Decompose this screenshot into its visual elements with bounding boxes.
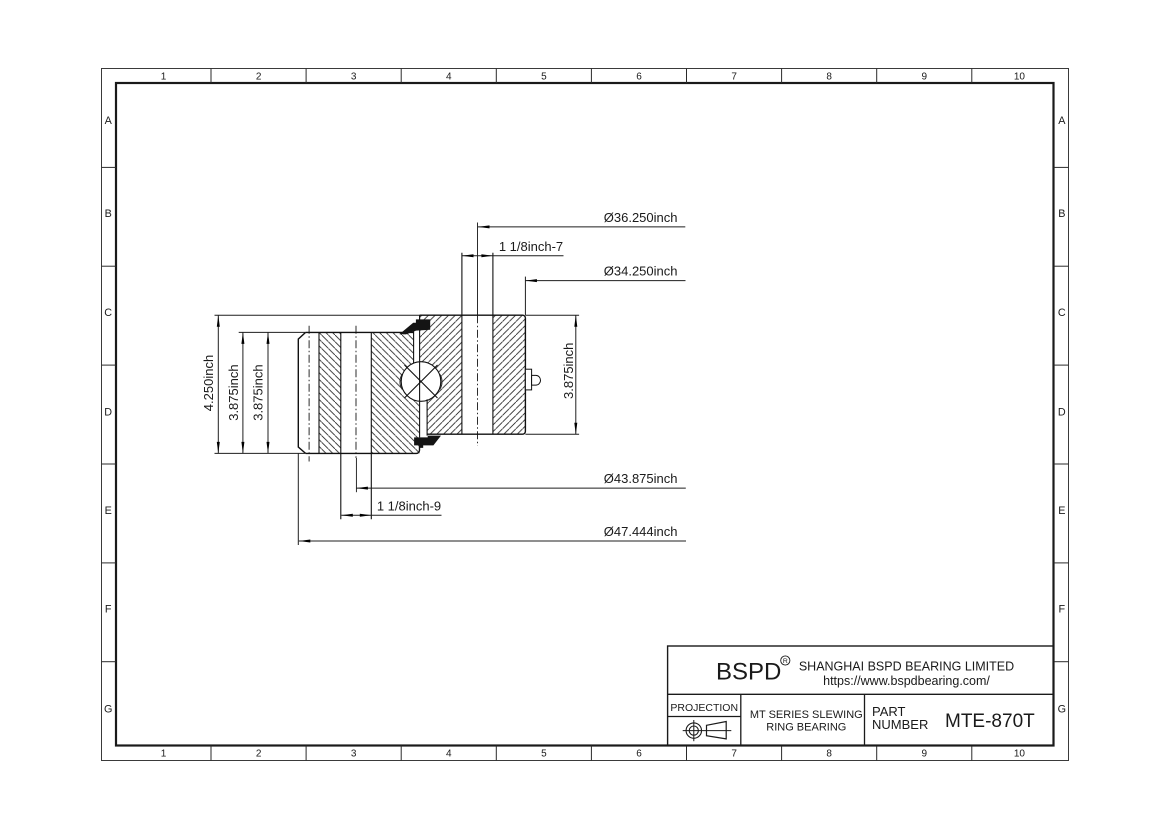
- svg-text:1: 1: [161, 749, 167, 760]
- svg-text:D: D: [1058, 406, 1066, 418]
- svg-text:3: 3: [351, 71, 357, 82]
- svg-text:C: C: [104, 307, 112, 319]
- svg-text:4: 4: [446, 749, 452, 760]
- svg-text:F: F: [1058, 604, 1065, 616]
- svg-text:A: A: [105, 115, 113, 127]
- svg-text:2: 2: [256, 749, 262, 760]
- svg-text:Ø34.250inch: Ø34.250inch: [604, 264, 678, 279]
- svg-text:6: 6: [636, 71, 642, 82]
- svg-text:BSPD: BSPD: [716, 659, 781, 686]
- svg-text:1 1/8inch-7: 1 1/8inch-7: [499, 239, 563, 254]
- svg-text:1: 1: [161, 71, 167, 82]
- svg-text:NUMBER: NUMBER: [872, 717, 928, 732]
- svg-text:7: 7: [731, 749, 737, 760]
- svg-text:Ø47.444inch: Ø47.444inch: [604, 524, 678, 539]
- svg-text:8: 8: [826, 749, 832, 760]
- svg-text:8: 8: [826, 71, 832, 82]
- svg-text:2: 2: [256, 71, 262, 82]
- svg-text:Ø43.875inch: Ø43.875inch: [604, 471, 678, 486]
- svg-text:R: R: [783, 658, 788, 665]
- svg-text:https://www.bspdbearing.com/: https://www.bspdbearing.com/: [823, 674, 990, 688]
- svg-text:9: 9: [922, 749, 928, 760]
- svg-text:MT SERIES SLEWING: MT SERIES SLEWING: [750, 709, 863, 721]
- svg-text:RING BEARING: RING BEARING: [766, 722, 846, 734]
- svg-text:10: 10: [1014, 71, 1026, 82]
- svg-text:SHANGHAI BSPD BEARING LIMITED: SHANGHAI BSPD BEARING LIMITED: [799, 659, 1014, 673]
- svg-text:1 1/8inch-9: 1 1/8inch-9: [377, 498, 441, 513]
- svg-text:4: 4: [446, 71, 452, 82]
- svg-text:A: A: [1058, 115, 1066, 127]
- svg-text:G: G: [104, 703, 112, 715]
- svg-text:3.875inch: 3.875inch: [251, 364, 266, 420]
- svg-text:3.875inch: 3.875inch: [226, 364, 241, 420]
- svg-text:G: G: [1058, 703, 1066, 715]
- svg-text:3.875inch: 3.875inch: [561, 343, 576, 399]
- svg-text:B: B: [1058, 208, 1065, 220]
- svg-text:MTE-870T: MTE-870T: [945, 711, 1035, 732]
- svg-text:10: 10: [1014, 749, 1026, 760]
- svg-text:PROJECTION: PROJECTION: [670, 702, 738, 714]
- svg-text:E: E: [105, 505, 112, 517]
- svg-text:5: 5: [541, 71, 547, 82]
- svg-text:Ø36.250inch: Ø36.250inch: [604, 210, 678, 225]
- svg-text:E: E: [1058, 505, 1065, 517]
- svg-text:9: 9: [922, 71, 928, 82]
- svg-text:F: F: [105, 604, 112, 616]
- svg-text:5: 5: [541, 749, 547, 760]
- svg-text:4.250inch: 4.250inch: [201, 355, 216, 411]
- svg-text:B: B: [105, 208, 112, 220]
- svg-text:7: 7: [731, 71, 737, 82]
- svg-text:6: 6: [636, 749, 642, 760]
- svg-text:D: D: [104, 406, 112, 418]
- svg-text:C: C: [1058, 307, 1066, 319]
- svg-text:3: 3: [351, 749, 357, 760]
